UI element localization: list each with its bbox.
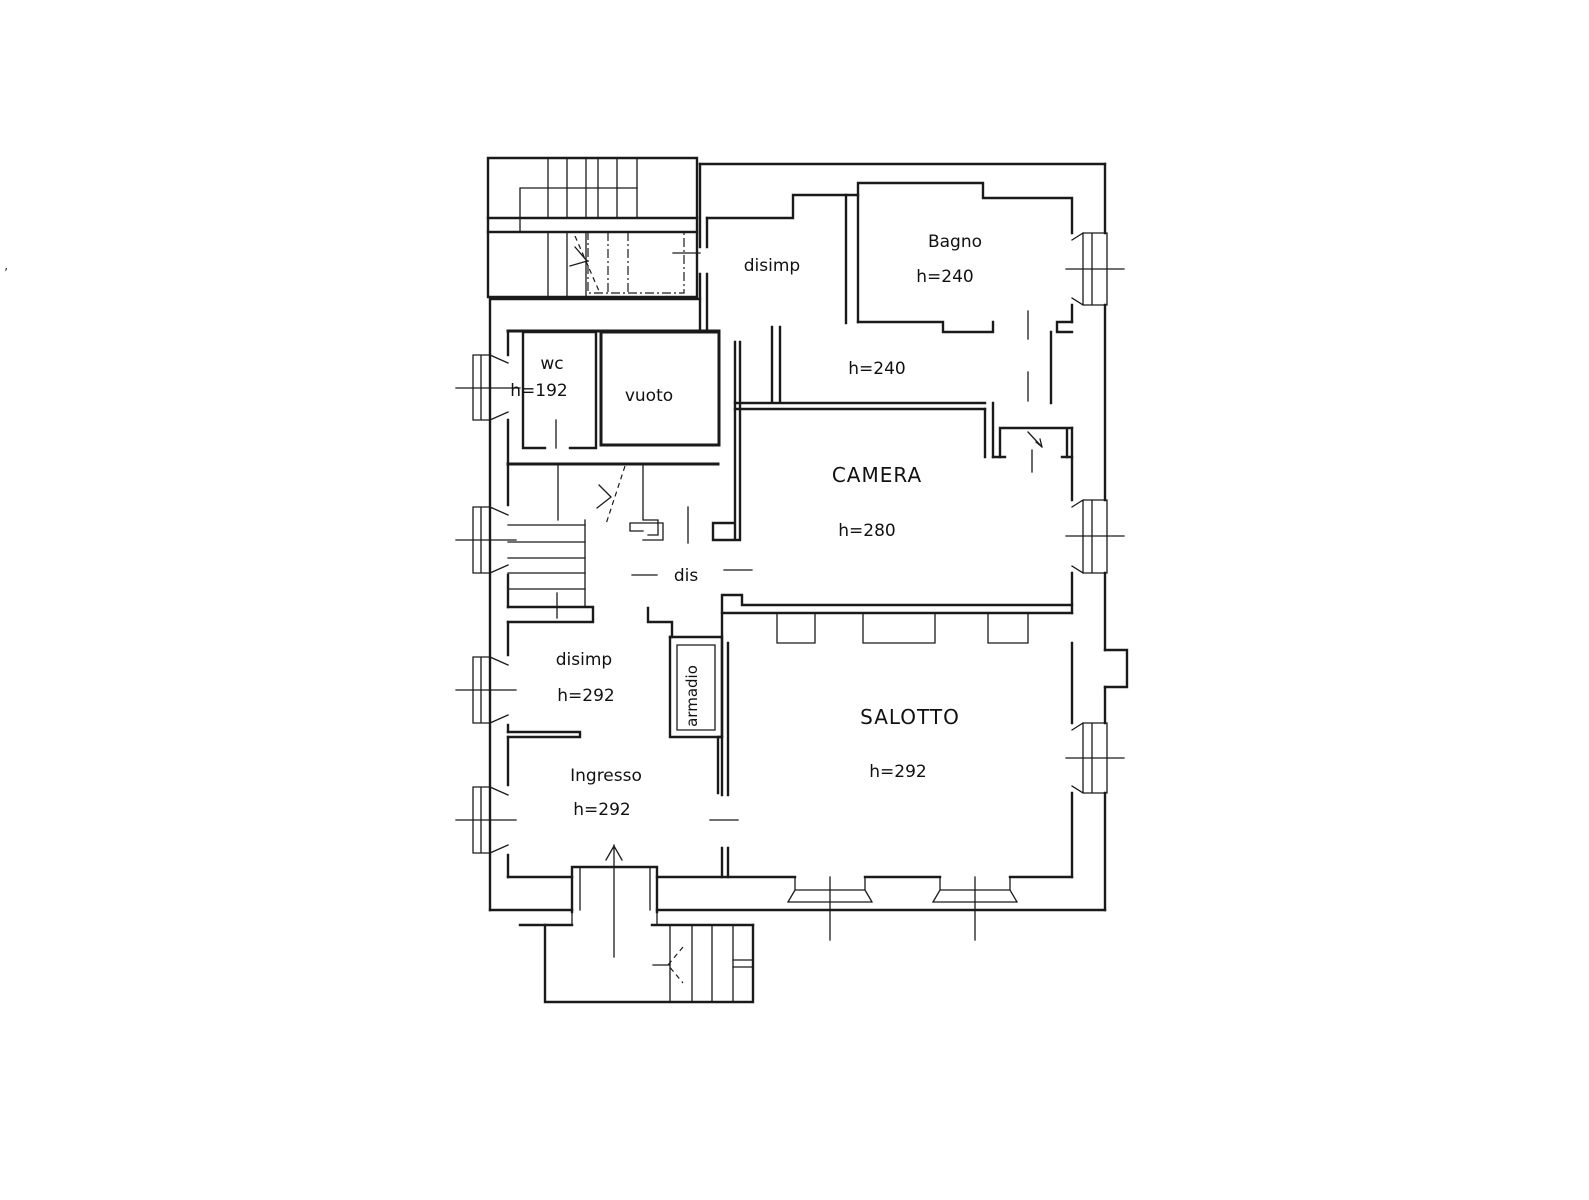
room-label-bagno: Bagno: [928, 232, 982, 252]
floor-plan-svg: disimp Bagno h=240 h=240 wc h=192 vuoto …: [0, 0, 1589, 1200]
room-label-disimp-lower: disimp: [556, 650, 612, 670]
room-label-wc: wc: [540, 354, 563, 374]
camera-walls: [722, 403, 1072, 643]
external-staircase-top: [488, 158, 700, 297]
right-windows: [1066, 233, 1124, 793]
room-label-armadio: armadio: [683, 665, 701, 727]
room-height-disimp-lower: h=292: [557, 686, 614, 706]
bottom-windows: [788, 877, 1017, 940]
room-height-salotto: h=292: [869, 762, 926, 782]
room-label-ingresso: Ingresso: [570, 766, 642, 786]
room-label-disimp-upper: disimp: [744, 256, 800, 276]
room-height-bagno: h=240: [916, 267, 973, 287]
stray-edge-mark: ’: [4, 267, 8, 282]
entrance-and-bottom-stair: [520, 845, 753, 1002]
floor-plan-page: disimp Bagno h=240 h=240 wc h=192 vuoto …: [0, 0, 1589, 1200]
room-label-salotto: SALOTTO: [860, 705, 960, 729]
room-label-dis: dis: [674, 566, 699, 586]
room-height-wc: h=192: [510, 381, 567, 401]
room-height-camera: h=280: [838, 521, 895, 541]
room-height-corridor: h=240: [848, 359, 905, 379]
internal-stair-hall: [508, 464, 752, 637]
room-height-ingresso: h=292: [573, 800, 630, 820]
left-windows: [456, 355, 520, 853]
room-label-camera: CAMERA: [832, 463, 922, 487]
room-label-vuoto: vuoto: [625, 386, 673, 406]
